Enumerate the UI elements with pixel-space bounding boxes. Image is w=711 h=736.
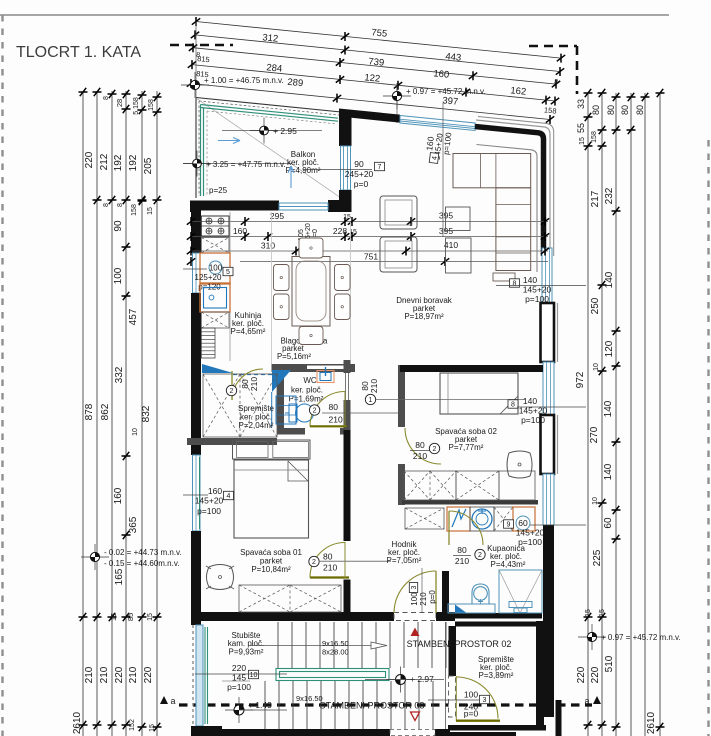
svg-text:15: 15 bbox=[343, 214, 351, 221]
svg-text:2: 2 bbox=[433, 446, 437, 453]
svg-text:P=4,43m²: P=4,43m² bbox=[491, 560, 526, 569]
svg-text:443: 443 bbox=[445, 51, 462, 64]
svg-text:145+20: 145+20 bbox=[523, 285, 552, 295]
svg-text:7: 7 bbox=[378, 164, 382, 171]
svg-text:10: 10 bbox=[250, 672, 258, 679]
svg-text:TLOCRT 1. KATA: TLOCRT 1. KATA bbox=[16, 44, 141, 61]
svg-text:210: 210 bbox=[249, 377, 259, 391]
svg-text:162: 162 bbox=[510, 85, 527, 98]
svg-text:100: 100 bbox=[209, 264, 223, 273]
svg-text:878: 878 bbox=[84, 403, 95, 420]
svg-text:p=100: p=100 bbox=[525, 294, 549, 304]
svg-text:15: 15 bbox=[149, 724, 156, 732]
svg-text:289: 289 bbox=[287, 77, 304, 90]
svg-text:972: 972 bbox=[575, 371, 586, 388]
svg-text:220: 220 bbox=[114, 666, 125, 683]
svg-text:210: 210 bbox=[419, 592, 428, 606]
svg-text:332: 332 bbox=[114, 366, 125, 383]
svg-text:80: 80 bbox=[620, 105, 630, 115]
svg-text:158: 158 bbox=[544, 105, 557, 115]
svg-text:+ 0.97 = +45.72 m.n.v.: + 0.97 = +45.72 m.n.v. bbox=[601, 633, 681, 642]
svg-text:STAMBENI PROSTOR 02: STAMBENI PROSTOR 02 bbox=[407, 639, 512, 649]
svg-text:8: 8 bbox=[513, 281, 517, 288]
svg-text:192: 192 bbox=[113, 154, 124, 171]
svg-text:80: 80 bbox=[329, 402, 339, 412]
svg-text:217: 217 bbox=[590, 190, 601, 207]
svg-text:140: 140 bbox=[523, 275, 537, 285]
svg-text:80: 80 bbox=[606, 105, 616, 115]
svg-text:245+20: 245+20 bbox=[345, 169, 374, 179]
svg-text:a: a bbox=[170, 696, 175, 706]
svg-text:312: 312 bbox=[262, 32, 279, 45]
svg-text:80: 80 bbox=[415, 440, 425, 450]
svg-text:365: 365 bbox=[128, 516, 139, 533]
svg-text:270: 270 bbox=[589, 426, 600, 443]
svg-text:P=9,93m²: P=9,93m² bbox=[229, 648, 264, 657]
svg-text:2: 2 bbox=[312, 559, 316, 566]
svg-text:510: 510 bbox=[604, 655, 615, 672]
svg-text:145+20: 145+20 bbox=[516, 528, 545, 538]
svg-text:212: 212 bbox=[99, 153, 110, 170]
svg-text:9: 9 bbox=[507, 522, 511, 529]
svg-text:p=100: p=100 bbox=[227, 682, 251, 692]
svg-text:33: 33 bbox=[576, 99, 586, 109]
svg-text:8x28.00: 8x28.00 bbox=[322, 648, 349, 657]
svg-text:397: 397 bbox=[442, 95, 459, 108]
svg-text:+ 0.97 = +45.72 m.n.v.: + 0.97 = +45.72 m.n.v. bbox=[406, 87, 486, 96]
svg-text:p=100: p=100 bbox=[197, 506, 221, 516]
svg-text:15: 15 bbox=[147, 207, 154, 215]
svg-text:205: 205 bbox=[143, 157, 154, 174]
svg-text:100: 100 bbox=[410, 592, 419, 606]
svg-text:p=0: p=0 bbox=[354, 179, 369, 189]
svg-text:5.158: 5.158 bbox=[133, 97, 140, 115]
svg-text:225: 225 bbox=[592, 549, 603, 566]
svg-text:284: 284 bbox=[266, 62, 283, 75]
svg-text:P=2,04m²: P=2,04m² bbox=[239, 421, 274, 430]
svg-text:80: 80 bbox=[457, 545, 467, 555]
svg-text:210: 210 bbox=[455, 556, 469, 566]
svg-text:55: 55 bbox=[576, 123, 586, 133]
svg-text:210: 210 bbox=[128, 666, 139, 683]
svg-text:p=25: p=25 bbox=[209, 186, 228, 195]
svg-text:60: 60 bbox=[603, 517, 614, 529]
svg-text:P=3,89m²: P=3,89m² bbox=[479, 671, 514, 680]
svg-text:+ 1.49: + 1.49 bbox=[248, 700, 272, 710]
svg-text:90: 90 bbox=[354, 159, 364, 169]
svg-text:210: 210 bbox=[99, 666, 110, 683]
svg-text:210: 210 bbox=[413, 451, 427, 461]
svg-text:457: 457 bbox=[128, 308, 139, 325]
svg-text:158: 158 bbox=[148, 99, 155, 111]
svg-text:p=100: p=100 bbox=[518, 537, 542, 547]
svg-text:80: 80 bbox=[635, 105, 645, 115]
svg-text:15: 15 bbox=[585, 609, 592, 617]
svg-text:815: 815 bbox=[197, 54, 210, 64]
svg-text:220: 220 bbox=[84, 151, 95, 168]
svg-text:2: 2 bbox=[478, 552, 482, 559]
svg-text:158: 158 bbox=[131, 204, 138, 216]
svg-text:228: 228 bbox=[333, 226, 347, 236]
svg-text:2: 2 bbox=[313, 408, 317, 415]
svg-text:P=7,05m²: P=7,05m² bbox=[387, 556, 422, 565]
svg-text:395: 395 bbox=[439, 226, 453, 236]
svg-text:210: 210 bbox=[84, 666, 95, 683]
svg-text:755: 755 bbox=[371, 27, 388, 40]
svg-text:152: 152 bbox=[129, 719, 136, 731]
svg-text:1: 1 bbox=[369, 397, 373, 404]
svg-text:192: 192 bbox=[128, 154, 139, 171]
svg-text:60: 60 bbox=[518, 518, 528, 528]
svg-text:250: 250 bbox=[590, 297, 601, 314]
svg-text:739: 739 bbox=[368, 56, 385, 69]
svg-text:8: 8 bbox=[511, 402, 515, 409]
svg-text:+ 2.95: + 2.95 bbox=[273, 126, 297, 136]
svg-text:100: 100 bbox=[464, 690, 478, 700]
svg-text:2610: 2610 bbox=[72, 711, 83, 734]
svg-text:8: 8 bbox=[554, 79, 559, 86]
svg-text:15: 15 bbox=[111, 613, 118, 621]
svg-text:395: 395 bbox=[439, 211, 453, 221]
svg-text:+ 1.00 = +46.75 m.n.v.: + 1.00 = +46.75 m.n.v. bbox=[204, 76, 284, 85]
svg-text:220: 220 bbox=[590, 666, 601, 683]
svg-text:P=4,65m²: P=4,65m² bbox=[231, 327, 266, 336]
svg-text:140: 140 bbox=[603, 463, 614, 480]
svg-text:220: 220 bbox=[232, 663, 246, 673]
svg-text:8: 8 bbox=[103, 203, 110, 207]
svg-text:210: 210 bbox=[329, 415, 343, 425]
svg-text:220: 220 bbox=[143, 666, 154, 683]
svg-text:210: 210 bbox=[369, 379, 379, 393]
svg-text:p=0: p=0 bbox=[428, 590, 437, 604]
svg-text:3: 3 bbox=[411, 585, 418, 589]
svg-text:220: 220 bbox=[576, 666, 587, 683]
svg-text:210: 210 bbox=[323, 563, 337, 573]
svg-text:410: 410 bbox=[444, 240, 458, 250]
svg-text:80: 80 bbox=[591, 105, 601, 115]
svg-text:+ 2.97: + 2.97 bbox=[410, 674, 434, 684]
svg-text:232: 232 bbox=[604, 187, 615, 204]
svg-text:- 0.02 = +44.73 m.n.v.: - 0.02 = +44.73 m.n.v. bbox=[104, 548, 182, 557]
svg-text:751: 751 bbox=[364, 252, 378, 262]
svg-text:10: 10 bbox=[132, 428, 139, 436]
svg-text:p=100: p=100 bbox=[521, 415, 545, 425]
svg-text:832: 832 bbox=[141, 405, 152, 422]
svg-text:+ 3.25 = +47.75 m.n.v.: + 3.25 = +47.75 m.n.v. bbox=[206, 160, 286, 169]
svg-text:STAMBENI PROSTOR 08: STAMBENI PROSTOR 08 bbox=[320, 701, 425, 711]
svg-text:3: 3 bbox=[483, 697, 487, 704]
svg-text:- 0.15 = +44.60m.n.v.: - 0.15 = +44.60m.n.v. bbox=[104, 559, 179, 568]
svg-text:158: 158 bbox=[591, 131, 598, 143]
svg-text:145+20: 145+20 bbox=[195, 496, 224, 506]
svg-text:160: 160 bbox=[113, 487, 124, 504]
svg-text:p=0: p=0 bbox=[464, 709, 479, 719]
svg-text:160: 160 bbox=[233, 226, 247, 236]
svg-text:P=18,97m²: P=18,97m² bbox=[404, 312, 444, 321]
svg-text:10: 10 bbox=[592, 497, 599, 505]
svg-text:P=10,84m²: P=10,84m² bbox=[251, 565, 291, 574]
svg-text:80: 80 bbox=[323, 552, 333, 562]
svg-text:4: 4 bbox=[227, 493, 231, 500]
svg-text:8: 8 bbox=[103, 96, 110, 100]
svg-text:120: 120 bbox=[604, 340, 615, 357]
svg-text:8: 8 bbox=[117, 203, 124, 207]
svg-text:140: 140 bbox=[604, 271, 615, 288]
svg-text:5: 5 bbox=[226, 269, 230, 276]
svg-text:P=7,77m²: P=7,77m² bbox=[449, 443, 484, 452]
svg-text:15: 15 bbox=[599, 609, 606, 617]
svg-text:165: 165 bbox=[114, 568, 125, 585]
svg-text:122: 122 bbox=[364, 72, 381, 85]
svg-text:90: 90 bbox=[113, 220, 124, 232]
svg-text:160: 160 bbox=[208, 486, 222, 496]
svg-text:2610: 2610 bbox=[646, 711, 657, 734]
svg-text:100: 100 bbox=[113, 267, 124, 284]
svg-text:125+20: 125+20 bbox=[195, 273, 222, 282]
svg-text:WC: WC bbox=[303, 376, 317, 385]
svg-text:15: 15 bbox=[579, 137, 586, 145]
svg-text:28: 28 bbox=[115, 99, 124, 107]
svg-text:15: 15 bbox=[147, 613, 154, 621]
svg-text:160: 160 bbox=[433, 68, 450, 81]
svg-text:P=5,16m²: P=5,16m² bbox=[277, 352, 311, 361]
svg-text:310: 310 bbox=[261, 241, 275, 251]
svg-text:862: 862 bbox=[100, 403, 111, 420]
svg-text:10: 10 bbox=[593, 363, 600, 371]
svg-text:140: 140 bbox=[523, 396, 537, 406]
svg-text:140: 140 bbox=[603, 400, 614, 417]
svg-text:2: 2 bbox=[230, 388, 234, 395]
svg-text:295: 295 bbox=[270, 211, 284, 221]
svg-text:85: 85 bbox=[126, 613, 135, 621]
svg-text:ker. ploč.: ker. ploč. bbox=[291, 386, 323, 395]
